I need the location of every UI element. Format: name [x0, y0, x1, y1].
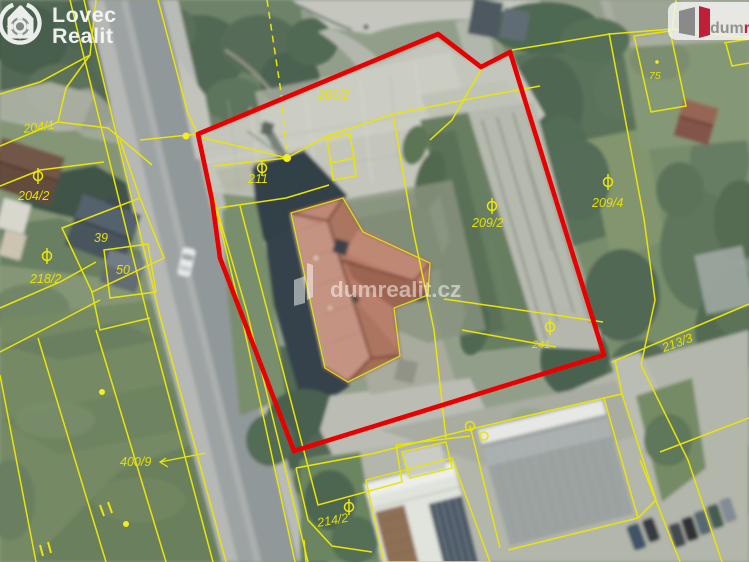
svg-text:400/9: 400/9	[120, 455, 151, 469]
svg-text:218/2: 218/2	[29, 272, 61, 286]
svg-text:241: 241	[531, 339, 550, 351]
svg-text:dumrealit.cz: dumrealit.cz	[330, 277, 461, 302]
svg-text:dumr: dumr	[710, 20, 749, 37]
svg-text:Realit: Realit	[52, 24, 114, 48]
svg-text:204/2: 204/2	[17, 189, 49, 203]
svg-text:211: 211	[247, 172, 268, 186]
svg-text:209/2: 209/2	[471, 216, 503, 230]
svg-text:209/4: 209/4	[591, 196, 623, 210]
svg-text:50: 50	[116, 263, 130, 277]
svg-text:39: 39	[94, 231, 108, 245]
svg-text:206/2: 206/2	[317, 88, 349, 102]
svg-text:75: 75	[649, 70, 661, 82]
